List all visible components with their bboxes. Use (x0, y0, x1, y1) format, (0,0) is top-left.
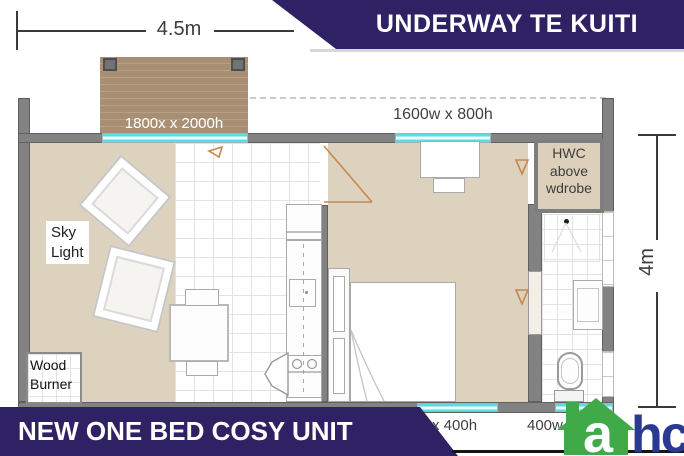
top-banner-underline (310, 49, 684, 52)
sink-drain (305, 291, 308, 294)
bathroom-right-window-2 (603, 352, 613, 396)
bed-mattress (350, 282, 456, 402)
logo-letter-a: a (583, 404, 614, 456)
counter-centerline (303, 244, 304, 398)
roof-overhang-line (250, 97, 606, 99)
dimension-height-label: 4m (636, 234, 662, 290)
sky-light-label: Sky Light (46, 221, 89, 264)
stove (287, 355, 322, 398)
deck-post (231, 58, 245, 71)
toilet-seat (561, 358, 579, 384)
deck-slider-label: 1800x x 2000h (100, 115, 248, 132)
floor-plan-flyer: 4.5m 4m 1800x x 2000h 1600w x 800h Sky L… (0, 0, 684, 456)
dimension-line-top-a (18, 30, 146, 32)
dining-chair (186, 361, 218, 376)
vanity-basin (577, 288, 599, 322)
logo-letters-hc: hc (631, 406, 684, 456)
cavity-slider-pocket (529, 272, 541, 334)
top-window-label: 1600w x 800h (393, 106, 493, 124)
dimension-line-top-b (214, 30, 294, 32)
shower-head (564, 219, 569, 224)
bed-pillow (333, 276, 345, 332)
desk-stool (433, 178, 465, 193)
dining-table (169, 304, 229, 362)
bathroom-right-window (603, 212, 613, 286)
hwc-wardrobe: HWC above wdrobe (534, 139, 604, 213)
desk (420, 141, 480, 178)
top-banner: UNDERWAY TE KUITI (272, 0, 684, 49)
dimension-line-right-a (656, 135, 658, 240)
bottom-banner: NEW ONE BED COSY UNIT (0, 407, 458, 456)
deck-slider-door (103, 134, 247, 142)
bedroom-bottom-window (418, 404, 497, 411)
shower-tray (544, 214, 600, 262)
armchair-cushion (103, 256, 165, 322)
bed-pillow (333, 338, 345, 394)
dimension-line-right-b (656, 292, 658, 408)
ahc-logo: a hc (557, 393, 684, 456)
wood-burner: Wood Burner (26, 352, 82, 404)
fridge (286, 204, 322, 240)
deck: 1800x x 2000h (100, 57, 248, 135)
deck-post (103, 58, 117, 71)
dimension-width-label: 4.5m (146, 18, 212, 41)
dining-chair (185, 289, 219, 306)
